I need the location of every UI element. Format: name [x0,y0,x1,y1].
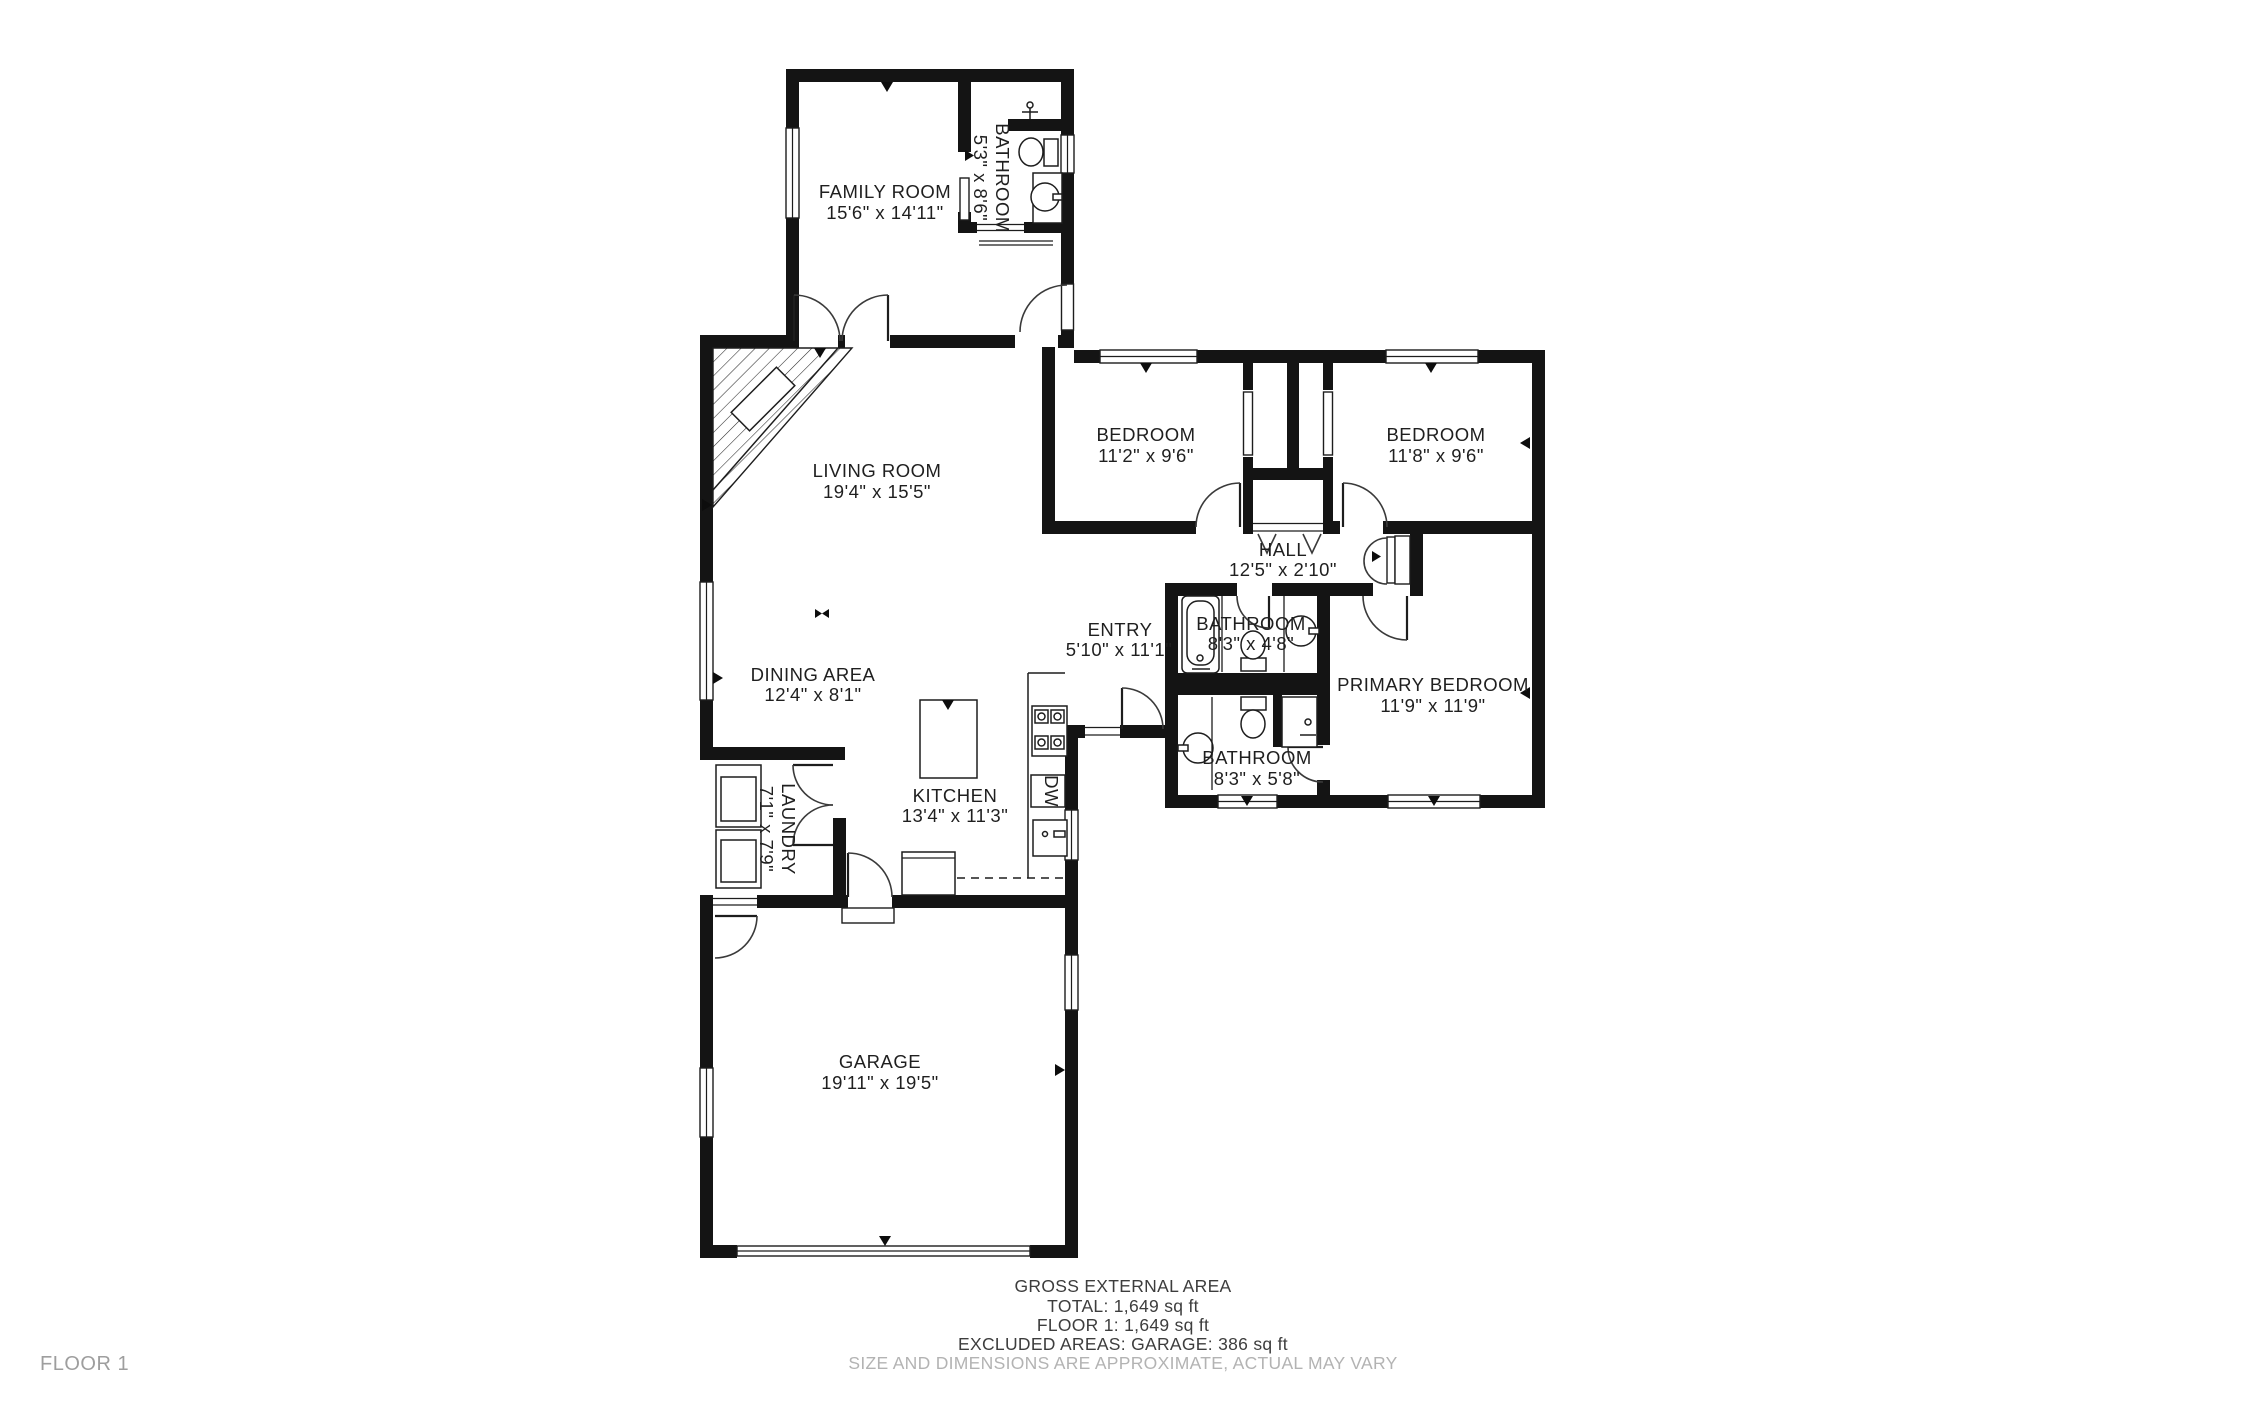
svg-text:5'3" x 8'6": 5'3" x 8'6" [970,135,991,221]
footer: GROSS EXTERNAL AREA TOTAL: 1,649 sq ft F… [848,1276,1397,1373]
refrigerator [1033,820,1067,856]
toilet [1008,102,1061,166]
room-label-kitchen: KITCHEN 13'4" x 11'3" [902,785,1009,826]
door-family-left [794,295,840,341]
svg-text:BATHROOM: BATHROOM [1202,747,1312,768]
svg-text:12'4" x 8'1": 12'4" x 8'1" [764,684,861,705]
window [786,128,799,218]
svg-text:11'9" x 11'9": 11'9" x 11'9" [1380,695,1485,716]
window [700,1068,713,1137]
svg-text:13'4" x 11'3": 13'4" x 11'3" [902,805,1009,826]
svg-text:GARAGE: GARAGE [839,1051,921,1072]
svg-text:ENTRY: ENTRY [1088,619,1153,640]
door-primary-bedroom [1363,596,1407,640]
svg-text:BATHROOM: BATHROOM [1196,613,1306,634]
window [1065,955,1078,1010]
room-label-family-room: FAMILY ROOM 15'6" x 14'11" [819,181,951,223]
floor-tag: FLOOR 1 [40,1353,129,1375]
sink [1031,173,1062,223]
room-label-laundry: LAUNDRY 7'1" x 7'9" [756,783,799,875]
window [1061,135,1074,173]
door-family-right [842,295,888,341]
dryer [716,830,761,888]
svg-text:PRIMARY BEDROOM: PRIMARY BEDROOM [1337,674,1529,695]
svg-text:LIVING ROOM: LIVING ROOM [813,460,942,481]
door-bathroom-pocket [960,178,969,220]
svg-text:19'4" x 15'5": 19'4" x 15'5" [823,481,931,502]
footer-total: TOTAL: 1,649 sq ft [1047,1296,1199,1316]
room-label-bedroom-right: BEDROOM 11'8" x 9'6" [1386,424,1485,466]
room-label-bathroom-primary: BATHROOM 8'3" x 5'8" [1202,747,1312,789]
room-label-garage: GARAGE 19'11" x 19'5" [821,1051,938,1093]
room-label-entry: ENTRY 5'10" x 11'1" [1066,619,1173,660]
garage-door [737,1246,1030,1256]
door-family-patio [1020,284,1074,332]
svg-text:DINING AREA: DINING AREA [751,664,876,685]
floorplan-page: FAMILY ROOM 15'6" x 14'11" BATHROOM 5'3"… [0,0,2244,1401]
svg-text:11'2" x 9'6": 11'2" x 9'6" [1098,445,1194,466]
svg-text:12'5" x 2'10": 12'5" x 2'10" [1229,559,1337,580]
shower [1282,697,1317,747]
room-label-bathroom-hall: BATHROOM 8'3" x 4'8" [1196,613,1306,654]
door-garage-laundry [713,899,757,959]
svg-text:8'3" x 4'8": 8'3" x 4'8" [1208,633,1294,654]
door-bedroom-left [1196,483,1240,527]
kitchen-peninsula [902,852,955,895]
toilet [1241,697,1266,738]
room-label-hall: HALL 12'5" x 2'10" [1229,539,1337,580]
svg-text:15'6" x 14'11": 15'6" x 14'11" [826,202,943,223]
window [700,582,713,700]
footer-disclaimer: SIZE AND DIMENSIONS ARE APPROXIMATE, ACT… [848,1353,1397,1373]
svg-text:HALL: HALL [1259,539,1307,560]
svg-text:5'10" x 11'1": 5'10" x 11'1" [1066,639,1173,660]
door-bedroom-right [1343,483,1387,527]
svg-text:19'11" x 19'5": 19'11" x 19'5" [821,1072,938,1093]
window [1386,350,1478,363]
floorplan-drawing: FAMILY ROOM 15'6" x 14'11" BATHROOM 5'3"… [0,0,2244,1401]
door-garage-kitchen [842,853,894,923]
kitchen-island [920,700,977,778]
stove [1032,706,1067,756]
svg-text:FAMILY ROOM: FAMILY ROOM [819,181,951,202]
room-label-living-room: LIVING ROOM 19'4" x 15'5" [813,460,942,502]
svg-text:8'3" x 5'8": 8'3" x 5'8" [1214,768,1300,789]
room-label-bedroom-left: BEDROOM 11'2" x 9'6" [1096,424,1195,466]
footer-area-title: GROSS EXTERNAL AREA [1014,1276,1231,1296]
svg-text:11'8" x 9'6": 11'8" x 9'6" [1388,445,1484,466]
closet-doors-hall-end [1364,536,1410,584]
room-labels: FAMILY ROOM 15'6" x 14'11" BATHROOM 5'3"… [751,123,1529,1093]
svg-text:LAUNDRY: LAUNDRY [778,783,799,875]
room-label-dining-area: DINING AREA 12'4" x 8'1" [751,664,876,705]
washer [716,765,761,827]
footer-floor1: FLOOR 1: 1,649 sq ft [1037,1315,1209,1335]
room-label-primary-bedroom: PRIMARY BEDROOM 11'9" x 11'9" [1337,674,1529,716]
window [1100,350,1197,363]
svg-text:7'1" x 7'9": 7'1" x 7'9" [756,786,777,872]
svg-text:KITCHEN: KITCHEN [913,785,998,806]
svg-text:BEDROOM: BEDROOM [1386,424,1485,445]
svg-text:BATHROOM: BATHROOM [992,123,1013,233]
footer-excluded: EXCLUDED AREAS: GARAGE: 386 sq ft [958,1334,1288,1354]
dishwasher-label: DW [1041,775,1062,807]
room-label-bathroom-top: BATHROOM 5'3" x 8'6" [970,123,1013,233]
svg-text:BEDROOM: BEDROOM [1096,424,1195,445]
